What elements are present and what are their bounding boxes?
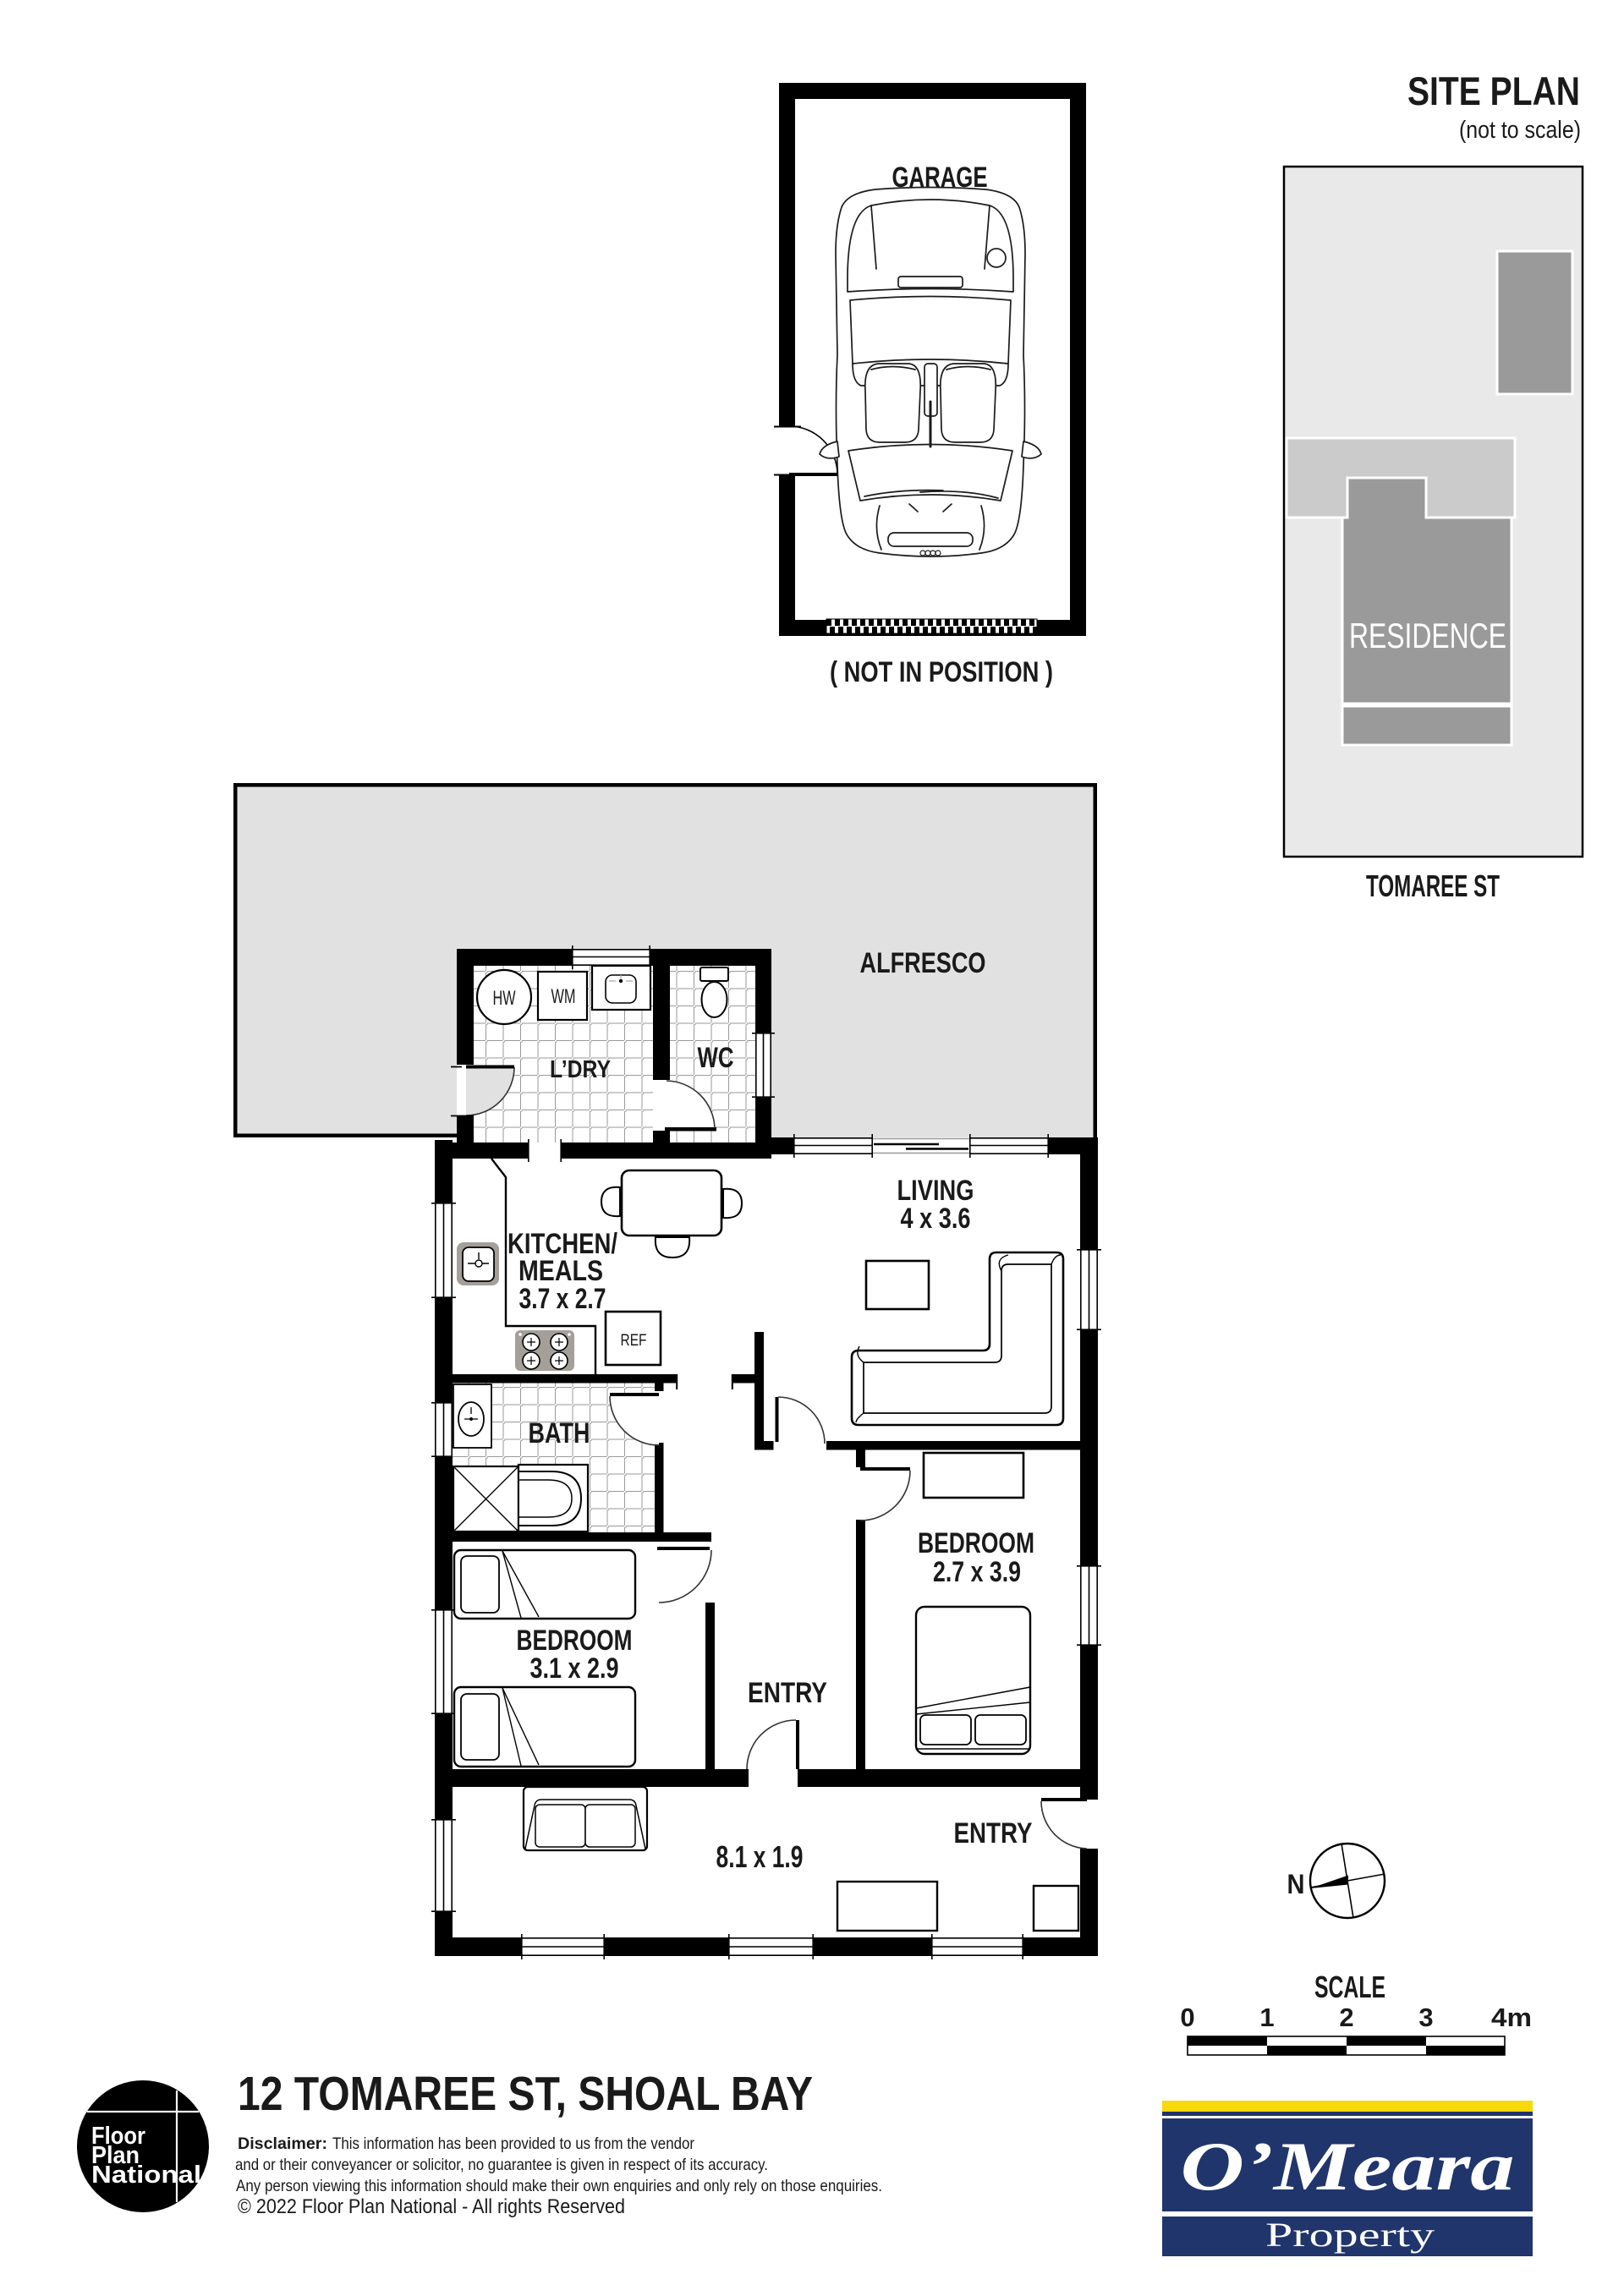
- svg-text:12 TOMAREE ST, SHOAL BAY: 12 TOMAREE ST, SHOAL BAY: [238, 2067, 813, 2121]
- svg-text:L’DRY: L’DRY: [550, 1056, 611, 1083]
- svg-text:Disclaimer:: Disclaimer:: [238, 2134, 327, 2153]
- svg-text:and or their conveyancer or so: and or their conveyancer or solicitor, n…: [235, 2156, 768, 2174]
- svg-text:National: National: [91, 2162, 201, 2189]
- svg-text:ALFRESCO: ALFRESCO: [860, 947, 986, 979]
- svg-text:ENTRY: ENTRY: [748, 1677, 827, 1709]
- svg-text:Property: Property: [1265, 2216, 1435, 2254]
- svg-text:Any person viewing this inform: Any person viewing this information shou…: [236, 2177, 882, 2195]
- svg-text:4 x 3.6: 4 x 3.6: [901, 1203, 971, 1235]
- svg-text:O’Meara: O’Meara: [1181, 2128, 1515, 2205]
- svg-text:2.7 x 3.9: 2.7 x 3.9: [933, 1556, 1021, 1588]
- svg-text:3: 3: [1418, 2003, 1433, 2032]
- svg-text:( NOT IN POSITION ): ( NOT IN POSITION ): [830, 656, 1053, 688]
- svg-text:REF: REF: [621, 1332, 647, 1350]
- svg-text:1: 1: [1259, 2003, 1274, 2032]
- svg-text:WC: WC: [698, 1042, 734, 1074]
- svg-text:3.1 x 2.9: 3.1 x 2.9: [530, 1652, 619, 1685]
- svg-text:(not to scale): (not to scale): [1459, 117, 1581, 144]
- svg-text:2: 2: [1339, 2003, 1353, 2032]
- svg-text:BEDROOM: BEDROOM: [918, 1527, 1034, 1559]
- svg-text:4m: 4m: [1491, 2003, 1532, 2032]
- svg-text:This information has been prov: This information has been provided to us…: [332, 2134, 694, 2153]
- svg-text:N: N: [1287, 1869, 1305, 1899]
- svg-text:HW: HW: [493, 987, 516, 1010]
- svg-text:WM: WM: [551, 985, 576, 1008]
- svg-text:RESIDENCE: RESIDENCE: [1349, 616, 1506, 655]
- svg-text:© 2022 Floor Plan National - A: © 2022 Floor Plan National - All rights …: [238, 2195, 625, 2218]
- svg-text:8.1 x 1.9: 8.1 x 1.9: [716, 1839, 804, 1874]
- svg-text:3.7 x 2.7: 3.7 x 2.7: [519, 1283, 606, 1315]
- svg-text:SITE PLAN: SITE PLAN: [1407, 68, 1580, 113]
- svg-text:SCALE: SCALE: [1314, 1970, 1385, 2004]
- svg-text:BATH: BATH: [529, 1417, 590, 1449]
- svg-text:TOMAREE ST: TOMAREE ST: [1366, 869, 1500, 903]
- svg-text:ENTRY: ENTRY: [954, 1817, 1033, 1849]
- svg-text:0: 0: [1180, 2003, 1194, 2032]
